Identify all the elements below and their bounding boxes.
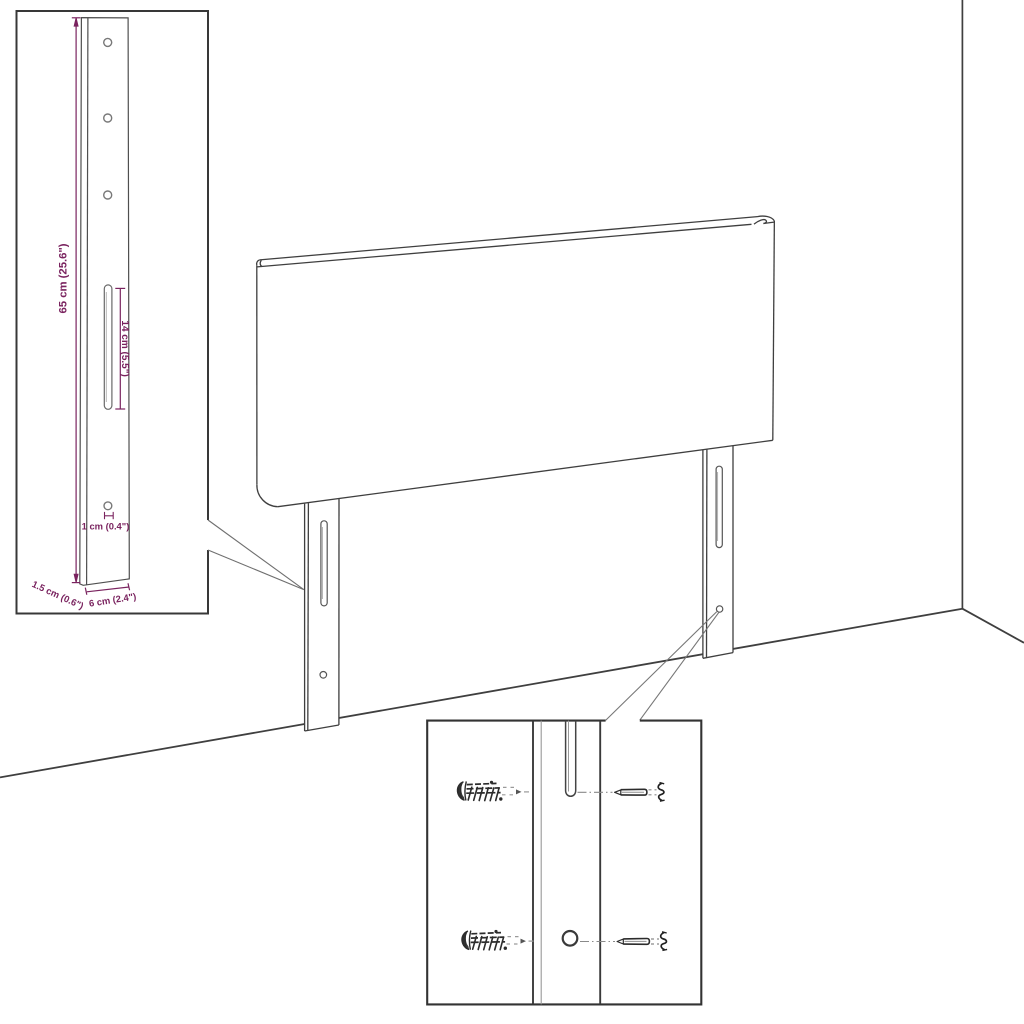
svg-text:1 cm (0.4"): 1 cm (0.4")	[82, 521, 130, 532]
svg-text:14 cm (5.5"): 14 cm (5.5")	[119, 320, 130, 376]
svg-text:65 cm (25.6"): 65 cm (25.6")	[58, 243, 70, 313]
